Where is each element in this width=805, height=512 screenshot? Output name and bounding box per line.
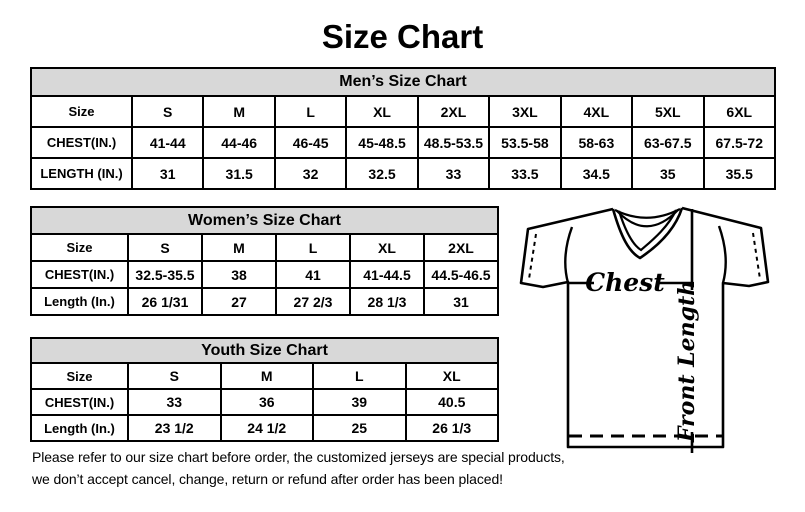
table-cell: 33.5 [489, 158, 560, 189]
table-cell: 53.5-58 [489, 127, 560, 158]
row-label-cell: CHEST(IN.) [31, 389, 128, 415]
left-armhole-seam [565, 227, 572, 283]
table-cell: 41-44.5 [350, 261, 424, 288]
right-cuff-stitch-line [753, 233, 760, 279]
table-row: Length (In.)23 1/224 1/22526 1/3 [31, 415, 498, 441]
table-row: SizeSMLXL2XL [31, 234, 498, 261]
disclaimer-line-2: we don’t accept cancel, change, return o… [32, 468, 565, 490]
table-row: CHEST(IN.)32.5-35.5384141-44.544.5-46.5 [31, 261, 498, 288]
jersey-diagram-svg: Chest Front Length [510, 195, 805, 467]
table-cell: 31 [132, 158, 203, 189]
jersey-measurement-diagram: Chest Front Length [510, 195, 805, 467]
table-row: CHEST(IN.)33363940.5 [31, 389, 498, 415]
table-cell: 33 [418, 158, 489, 189]
table-cell: 36 [221, 389, 314, 415]
table-cell: L [313, 363, 406, 389]
table-cell: 3XL [489, 96, 560, 127]
youth-size-table: Youth Size ChartSizeSMLXLCHEST(IN.)33363… [30, 337, 499, 442]
table-row: CHEST(IN.)41-4444-4646-4545-48.548.5-53.… [31, 127, 775, 158]
table-cell: 31 [424, 288, 498, 315]
table-cell: 27 [202, 288, 276, 315]
table-cell: 26 1/3 [406, 415, 499, 441]
table-cell: 41 [276, 261, 350, 288]
front-length-label: Front Length [674, 280, 700, 443]
table-cell: 58-63 [561, 127, 632, 158]
table-cell: 5XL [632, 96, 703, 127]
table-cell: S [132, 96, 203, 127]
disclaimer: Please refer to our size chart before or… [32, 446, 565, 490]
table-row: Length (In.)26 1/312727 2/328 1/331 [31, 288, 498, 315]
table-row: SizeSMLXL [31, 363, 498, 389]
table-cell: 34.5 [561, 158, 632, 189]
table-cell: 39 [313, 389, 406, 415]
table-cell: M [221, 363, 314, 389]
table-cell: L [275, 96, 346, 127]
table-cell: 33 [128, 389, 221, 415]
womens-size-table: Women’s Size ChartSizeSMLXL2XLCHEST(IN.)… [30, 206, 499, 316]
row-label-cell: Length (In.) [31, 288, 128, 315]
table-title: Youth Size Chart [31, 338, 498, 363]
row-label-cell: LENGTH (IN.) [31, 158, 132, 189]
table-cell: 23 1/2 [128, 415, 221, 441]
chest-label: Chest [585, 268, 665, 297]
row-label-cell: CHEST(IN.) [31, 261, 128, 288]
table-cell: S [128, 234, 202, 261]
table-cell: 35 [632, 158, 703, 189]
row-label-cell: Size [31, 363, 128, 389]
table-cell: S [128, 363, 221, 389]
table-cell: M [202, 234, 276, 261]
table-cell: L [276, 234, 350, 261]
mens-size-table: Men’s Size ChartSizeSMLXL2XL3XL4XL5XL6XL… [30, 67, 776, 190]
table-cell: 40.5 [406, 389, 499, 415]
row-label-cell: Size [31, 234, 128, 261]
table-cell: 48.5-53.5 [418, 127, 489, 158]
table-cell: XL [406, 363, 499, 389]
table-cell: 63-67.5 [632, 127, 703, 158]
table-cell: 26 1/31 [128, 288, 202, 315]
table-cell: 44-46 [203, 127, 274, 158]
row-label-cell: Length (In.) [31, 415, 128, 441]
table-row: SizeSMLXL2XL3XL4XL5XL6XL [31, 96, 775, 127]
disclaimer-line-1: Please refer to our size chart before or… [32, 446, 565, 468]
table-cell: 31.5 [203, 158, 274, 189]
jersey-outline [521, 208, 768, 447]
table-cell: 46-45 [275, 127, 346, 158]
table-cell: M [203, 96, 274, 127]
table-cell: 32.5-35.5 [128, 261, 202, 288]
table-title: Women’s Size Chart [31, 207, 498, 234]
table-cell: 4XL [561, 96, 632, 127]
table-cell: 35.5 [704, 158, 776, 189]
table-cell: 25 [313, 415, 406, 441]
table-cell: 6XL [704, 96, 776, 127]
page-title: Size Chart [0, 18, 805, 56]
table-cell: 32.5 [346, 158, 417, 189]
right-armhole-seam [719, 226, 726, 283]
table-cell: 24 1/2 [221, 415, 314, 441]
table-cell: 2XL [418, 96, 489, 127]
table-cell: 41-44 [132, 127, 203, 158]
table-cell: XL [350, 234, 424, 261]
left-cuff-stitch-line [529, 234, 536, 279]
table-cell: 32 [275, 158, 346, 189]
table-cell: 67.5-72 [704, 127, 776, 158]
table-cell: 28 1/3 [350, 288, 424, 315]
table-row: LENGTH (IN.)3131.53232.53333.534.53535.5 [31, 158, 775, 189]
table-cell: 45-48.5 [346, 127, 417, 158]
row-label-cell: CHEST(IN.) [31, 127, 132, 158]
table-cell: 2XL [424, 234, 498, 261]
table-cell: 27 2/3 [276, 288, 350, 315]
table-cell: 38 [202, 261, 276, 288]
table-cell: 44.5-46.5 [424, 261, 498, 288]
row-label-cell: Size [31, 96, 132, 127]
table-cell: XL [346, 96, 417, 127]
table-title: Men’s Size Chart [31, 68, 775, 96]
